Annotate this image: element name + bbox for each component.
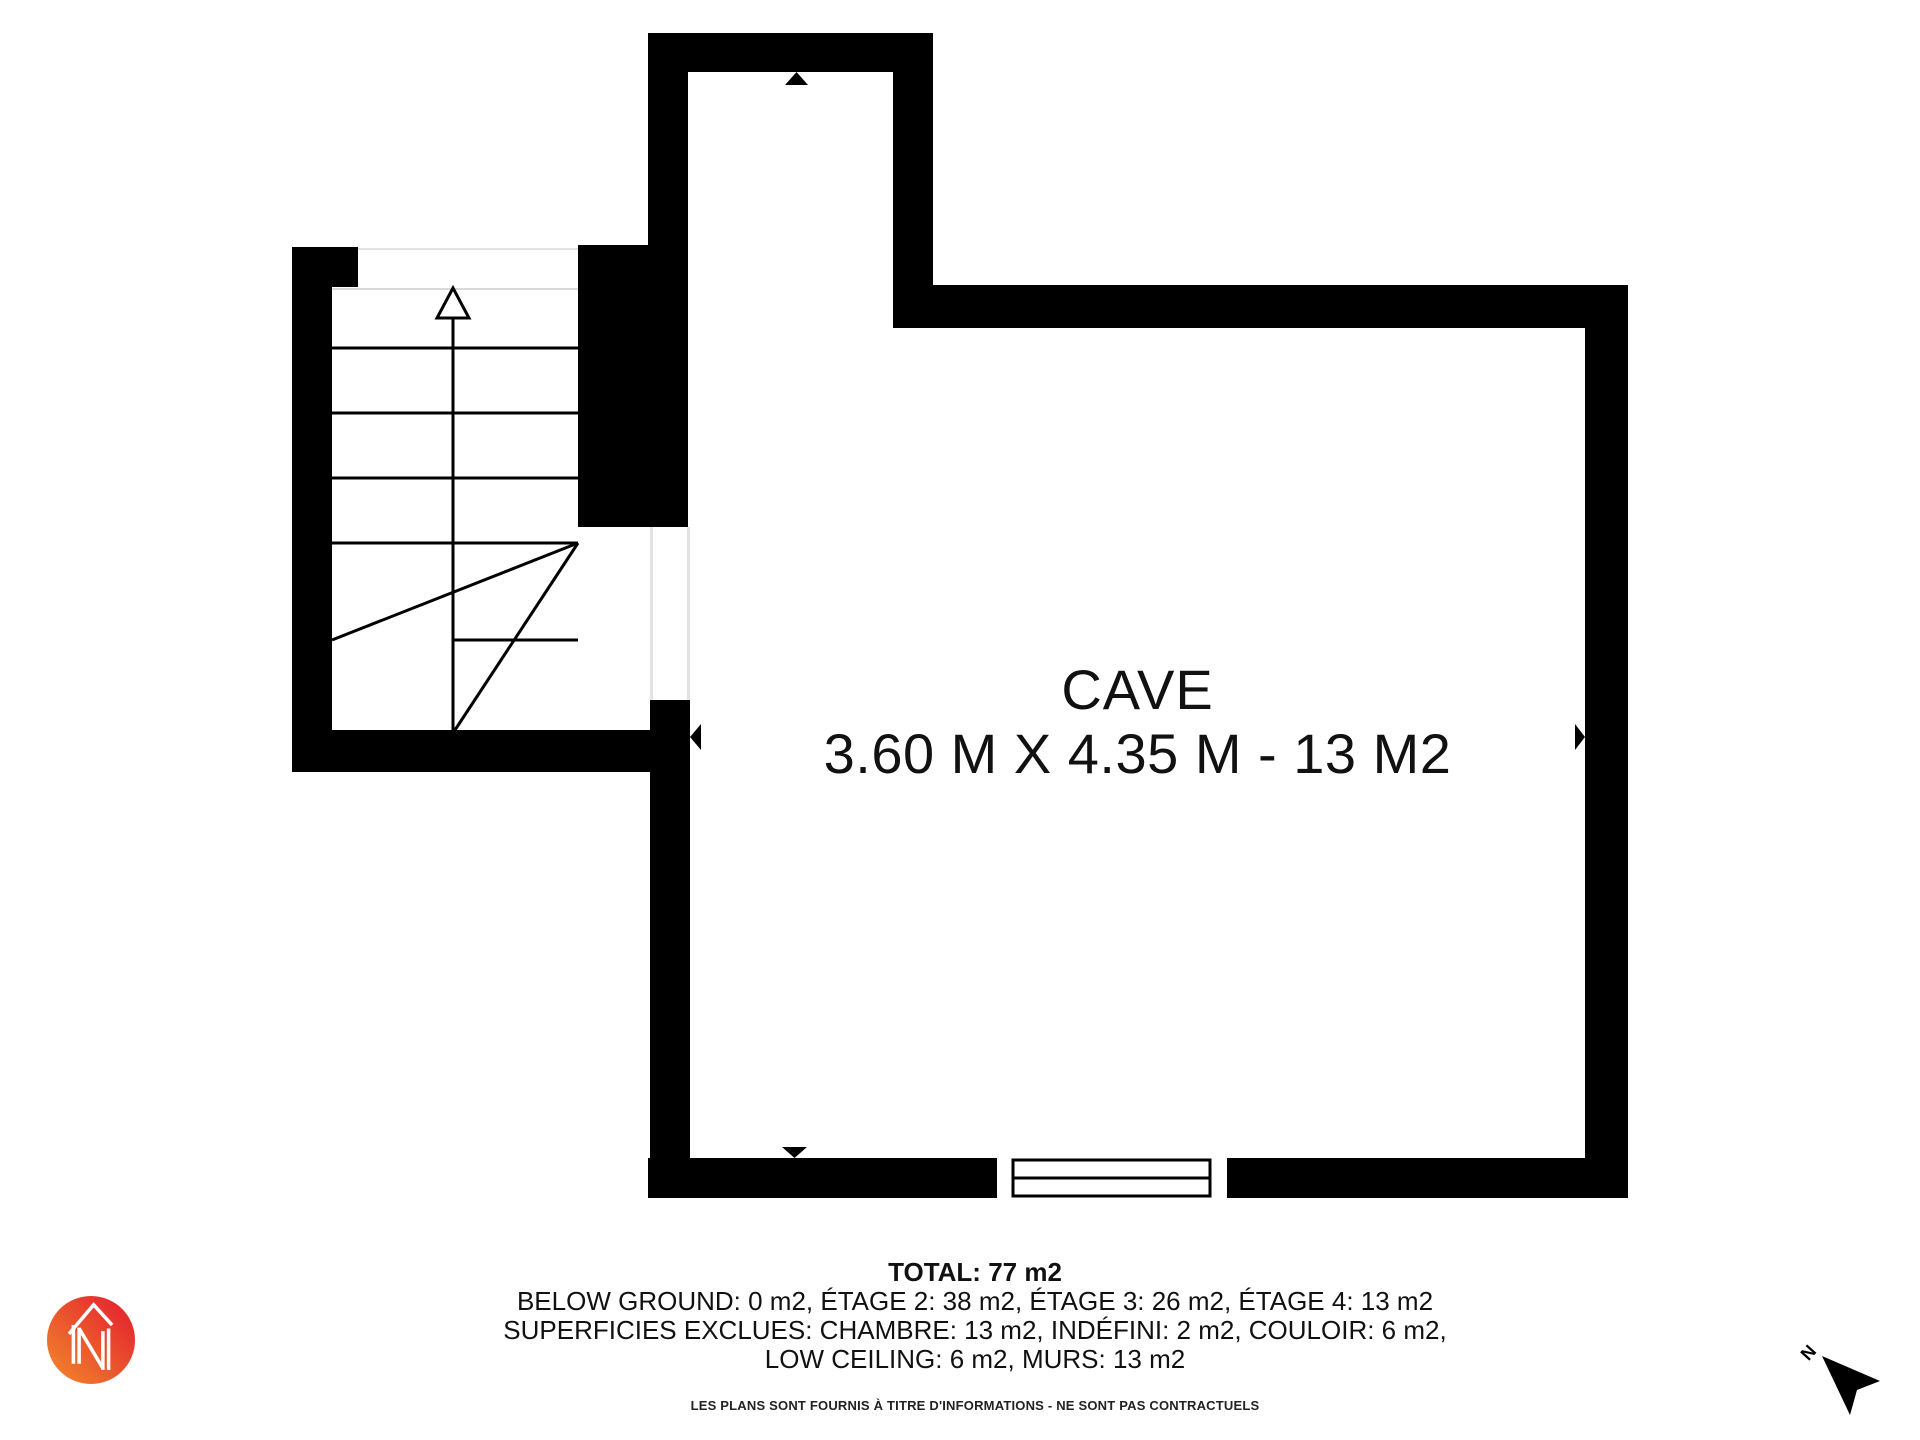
- wall-room-bottom-left-segment: [648, 1158, 997, 1198]
- agency-logo: [47, 1296, 135, 1384]
- logo-roof: [69, 1305, 112, 1334]
- walls: [292, 33, 1628, 1198]
- stair-winder-diagonal: [455, 543, 578, 730]
- room-label: CAVE 3.60 M X 4.35 M - 13 M2: [690, 658, 1585, 786]
- north-compass: N: [1795, 1333, 1895, 1428]
- wall-room-top: [933, 285, 1628, 328]
- staircase: [332, 288, 578, 730]
- north-arrow-icon: [1822, 1356, 1880, 1415]
- door-markers: [690, 72, 1585, 1158]
- stair-up-arrow-head: [437, 288, 469, 318]
- stair-winder-diagonal: [332, 543, 578, 640]
- compass-north-label: N: [1797, 1341, 1821, 1364]
- disclaimer-text: LES PLANS SONT FOURNIS À TITRE D'INFORMA…: [30, 1398, 1920, 1413]
- wall-cave-left: [650, 700, 690, 1198]
- window-symbol: [1013, 1160, 1210, 1196]
- summary-excluded-line-2: LOW CEILING: 6 m2, MURS: 13 m2: [30, 1345, 1920, 1374]
- wall-stair-bottom: [292, 730, 690, 772]
- room-dimensions: 3.60 M X 4.35 M - 13 M2: [690, 722, 1585, 786]
- summary-floors: BELOW GROUND: 0 m2, ÉTAGE 2: 38 m2, ÉTAG…: [30, 1287, 1920, 1316]
- door-marker-down-icon: [782, 1147, 807, 1158]
- door-marker-up-icon: [785, 72, 808, 85]
- floor-plan-page: CAVE 3.60 M X 4.35 M - 13 M2 TOTAL: 77 m…: [0, 0, 1920, 1440]
- area-summary: TOTAL: 77 m2 BELOW GROUND: 0 m2, ÉTAGE 2…: [30, 1258, 1920, 1374]
- wall-stair-left: [292, 247, 332, 772]
- wall-room-right: [1585, 285, 1628, 1198]
- wall-stair-top-left-block: [292, 247, 358, 287]
- logo-diagonal: [79, 1329, 103, 1369]
- wall-corridor-top: [648, 33, 933, 72]
- wall-corridor-right: [893, 33, 933, 328]
- summary-total: TOTAL: 77 m2: [30, 1258, 1920, 1287]
- wall-room-bottom-right-segment: [1227, 1158, 1628, 1198]
- summary-excluded-line-1: SUPERFICIES EXCLUES: CHAMBRE: 13 m2, IND…: [30, 1316, 1920, 1345]
- logo-house-n-icon: [47, 1296, 135, 1384]
- wall-stair-right-block: [578, 245, 688, 527]
- room-name: CAVE: [690, 658, 1585, 722]
